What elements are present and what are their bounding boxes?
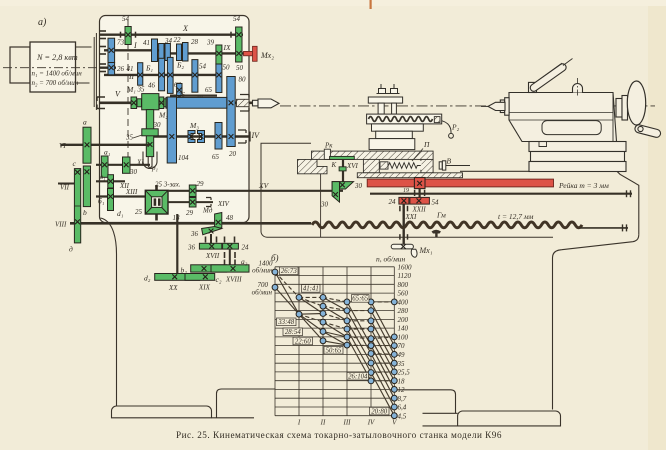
svg-text:IV: IV: [367, 419, 375, 427]
svg-text:п₁ = 1400 об/мин: п₁ = 1400 об/мин: [32, 70, 83, 78]
svg-text:Mд: Mд: [202, 207, 213, 215]
svg-text:t = 12,7 мм: t = 12,7 мм: [498, 212, 534, 221]
svg-text:12: 12: [398, 386, 406, 394]
svg-text:20:80: 20:80: [371, 408, 387, 415]
svg-text:а): а): [38, 17, 47, 28]
svg-text:1120: 1120: [398, 272, 412, 280]
svg-text:VI: VI: [59, 142, 66, 150]
svg-text:65:65: 65:65: [352, 296, 368, 303]
svg-text:8,7: 8,7: [398, 395, 407, 403]
svg-text:20: 20: [229, 150, 237, 158]
svg-text:80: 80: [239, 76, 247, 84]
svg-text:р₁: р₁: [151, 164, 158, 172]
svg-text:VII: VII: [60, 184, 70, 192]
svg-text:II: II: [320, 419, 326, 427]
svg-text:70: 70: [398, 342, 406, 350]
svg-text:25: 25: [135, 208, 143, 216]
svg-text:30: 30: [153, 121, 162, 129]
svg-text:54: 54: [199, 63, 207, 71]
svg-text:Рис. 25. Кинематическая схема: Рис. 25. Кинематическая схема токарно-за…: [176, 430, 502, 440]
svg-text:п, об/мин: п, об/мин: [376, 255, 406, 264]
svg-text:41: 41: [127, 65, 134, 73]
svg-text:280: 280: [398, 307, 409, 315]
svg-text:б₁: б₁: [98, 197, 105, 206]
svg-text:IX: IX: [223, 43, 231, 52]
svg-text:Р₂: Р₂: [451, 123, 460, 132]
svg-text:25,5: 25,5: [398, 369, 411, 377]
svg-text:в₁: в₁: [100, 173, 105, 181]
svg-text:п₂ = 700 об/мин: п₂ = 700 об/мин: [32, 79, 79, 87]
svg-text:Б₁: Б₁: [145, 64, 153, 73]
svg-text:а₂: а₂: [241, 257, 248, 266]
svg-text:39: 39: [206, 39, 215, 47]
svg-text:54: 54: [432, 199, 440, 207]
svg-text:28: 28: [191, 38, 199, 46]
svg-text:4,5: 4,5: [398, 412, 407, 420]
svg-text:73: 73: [117, 39, 125, 47]
svg-text:Mх₂: Mх₂: [260, 51, 274, 60]
svg-text:41: 41: [143, 39, 150, 47]
svg-text:30: 30: [354, 182, 363, 190]
svg-text:400: 400: [398, 298, 409, 306]
svg-text:50: 50: [223, 64, 231, 72]
svg-text:140: 140: [398, 325, 409, 333]
svg-text:24: 24: [389, 198, 397, 206]
svg-text:46: 46: [148, 82, 156, 90]
svg-text:48: 48: [226, 214, 234, 222]
svg-text:M₁: M₁: [126, 85, 136, 94]
svg-text:800: 800: [398, 281, 409, 289]
svg-text:IV: IV: [251, 131, 261, 140]
svg-text:Mх₁: Mх₁: [419, 246, 433, 255]
svg-text:26:73: 26:73: [281, 268, 297, 275]
svg-text:54: 54: [233, 15, 241, 23]
svg-text:XIX: XIX: [198, 284, 211, 292]
svg-text:22:60: 22:60: [295, 338, 311, 345]
svg-text:560: 560: [398, 290, 409, 298]
svg-text:29: 29: [197, 180, 205, 188]
svg-text:об/мин: об/мин: [252, 288, 273, 296]
svg-text:К: К: [331, 161, 337, 169]
svg-text:M₃: M₃: [189, 121, 199, 130]
svg-text:XVIII: XVIII: [225, 276, 242, 284]
svg-text:65: 65: [212, 153, 220, 161]
svg-text:а: а: [83, 118, 87, 127]
svg-text:33:48: 33:48: [277, 319, 294, 326]
svg-text:об/мин: об/мин: [252, 267, 273, 275]
svg-text:35: 35: [137, 86, 146, 94]
svg-text:50:65: 50:65: [326, 348, 342, 355]
svg-text:25 3-зах.: 25 3-зах.: [155, 181, 181, 189]
svg-text:В: В: [447, 157, 452, 166]
svg-text:41:41: 41:41: [303, 286, 319, 293]
svg-text:28:54: 28:54: [285, 329, 301, 336]
svg-text:XVII: XVII: [205, 252, 220, 260]
svg-text:XIV: XIV: [217, 200, 230, 208]
svg-text:6,4: 6,4: [398, 404, 407, 412]
svg-text:I: I: [133, 41, 137, 50]
svg-text:Б₂: Б₂: [176, 61, 184, 70]
svg-text:Гм: Гм: [436, 211, 446, 220]
svg-text:II: II: [128, 72, 134, 81]
svg-text:Рк: Рк: [324, 142, 333, 150]
svg-text:30: 30: [320, 201, 329, 209]
svg-text:XIII: XIII: [125, 188, 138, 196]
svg-text:49: 49: [398, 351, 406, 359]
svg-text:35: 35: [125, 134, 134, 142]
svg-text:50: 50: [236, 64, 244, 72]
svg-text:b: b: [83, 208, 87, 217]
svg-text:VIII: VIII: [55, 220, 67, 228]
svg-text:26:104: 26:104: [348, 374, 368, 381]
svg-text:26: 26: [117, 65, 125, 73]
svg-text:д: д: [69, 245, 73, 254]
svg-text:104: 104: [178, 154, 189, 162]
svg-text:22: 22: [174, 36, 182, 44]
svg-text:XXI: XXI: [405, 213, 418, 221]
svg-text:65: 65: [205, 86, 213, 94]
svg-text:29: 29: [186, 209, 194, 217]
svg-text:24: 24: [242, 244, 250, 252]
svg-text:III: III: [343, 419, 352, 427]
svg-text:c₂: c₂: [216, 275, 222, 284]
svg-text:30: 30: [129, 168, 138, 176]
svg-text:100: 100: [398, 334, 409, 342]
svg-text:XV: XV: [258, 181, 270, 190]
svg-text:XVI: XVI: [346, 162, 359, 170]
svg-text:Рейка m = 3 мм: Рейка m = 3 мм: [558, 181, 609, 190]
svg-text:35: 35: [397, 360, 406, 368]
svg-text:V: V: [392, 419, 397, 427]
svg-text:d₂: d₂: [144, 274, 151, 283]
svg-text:18: 18: [398, 377, 406, 385]
svg-text:34: 34: [164, 37, 173, 45]
svg-text:N = 2,8 квт: N = 2,8 квт: [36, 53, 78, 62]
svg-text:П: П: [423, 140, 430, 149]
svg-text:а₁: а₁: [104, 148, 111, 157]
svg-text:54: 54: [122, 15, 130, 23]
svg-text:36: 36: [190, 230, 199, 238]
svg-text:d₁: d₁: [117, 209, 124, 218]
svg-text:36: 36: [187, 244, 196, 252]
svg-text:XX: XX: [168, 284, 178, 292]
svg-text:1600: 1600: [398, 263, 413, 271]
svg-text:M₂: M₂: [158, 111, 168, 120]
svg-text:200: 200: [398, 316, 409, 324]
